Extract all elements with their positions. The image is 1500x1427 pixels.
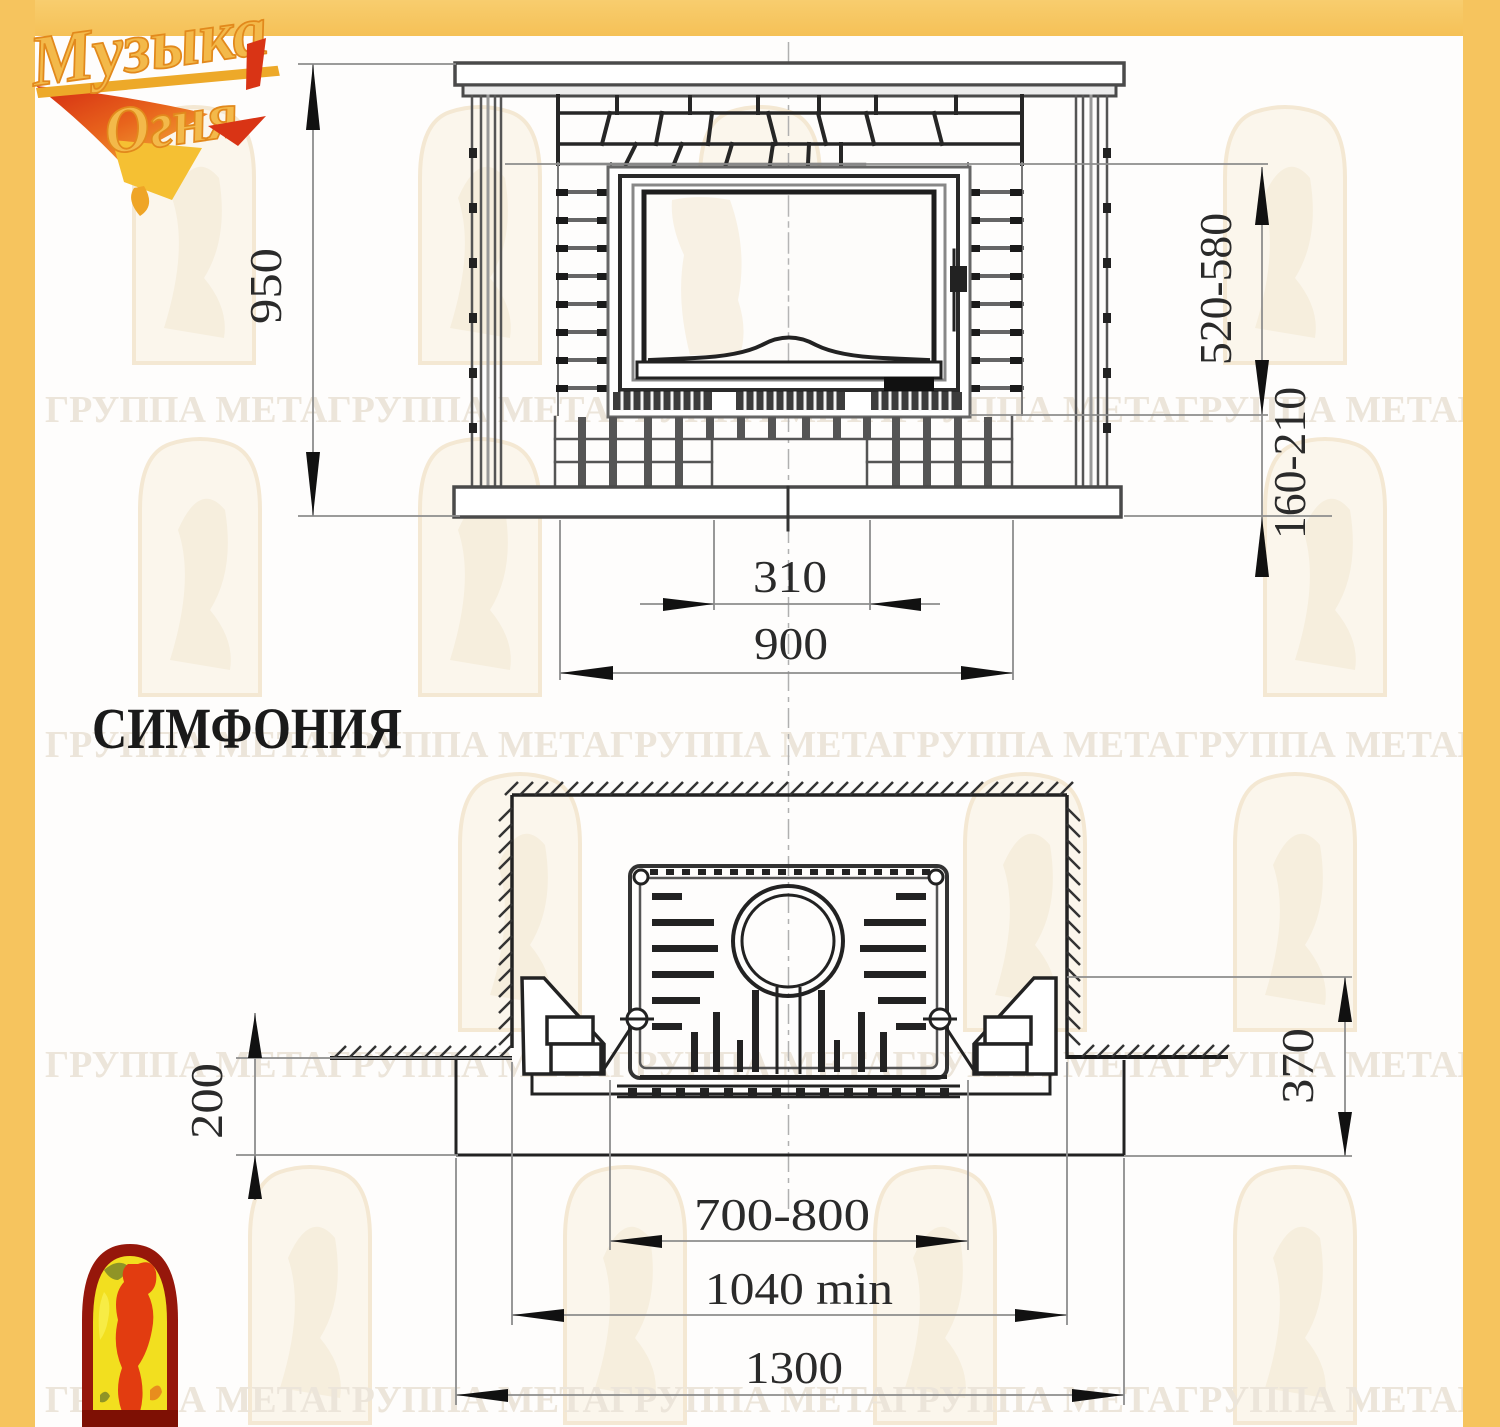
svg-text:700-800: 700-800 bbox=[694, 1189, 870, 1240]
svg-text:950: 950 bbox=[240, 248, 291, 324]
svg-text:СИМФОНИЯ: СИМФОНИЯ bbox=[92, 696, 402, 761]
svg-text:370: 370 bbox=[1272, 1028, 1323, 1104]
svg-text:1040 min: 1040 min bbox=[705, 1263, 893, 1314]
svg-text:900: 900 bbox=[754, 618, 828, 669]
svg-text:310: 310 bbox=[753, 551, 827, 602]
svg-text:200: 200 bbox=[181, 1063, 232, 1139]
svg-text:520-580: 520-580 bbox=[1190, 213, 1241, 365]
svg-text:1300: 1300 bbox=[745, 1342, 843, 1393]
svg-text:160-210: 160-210 bbox=[1264, 387, 1315, 539]
